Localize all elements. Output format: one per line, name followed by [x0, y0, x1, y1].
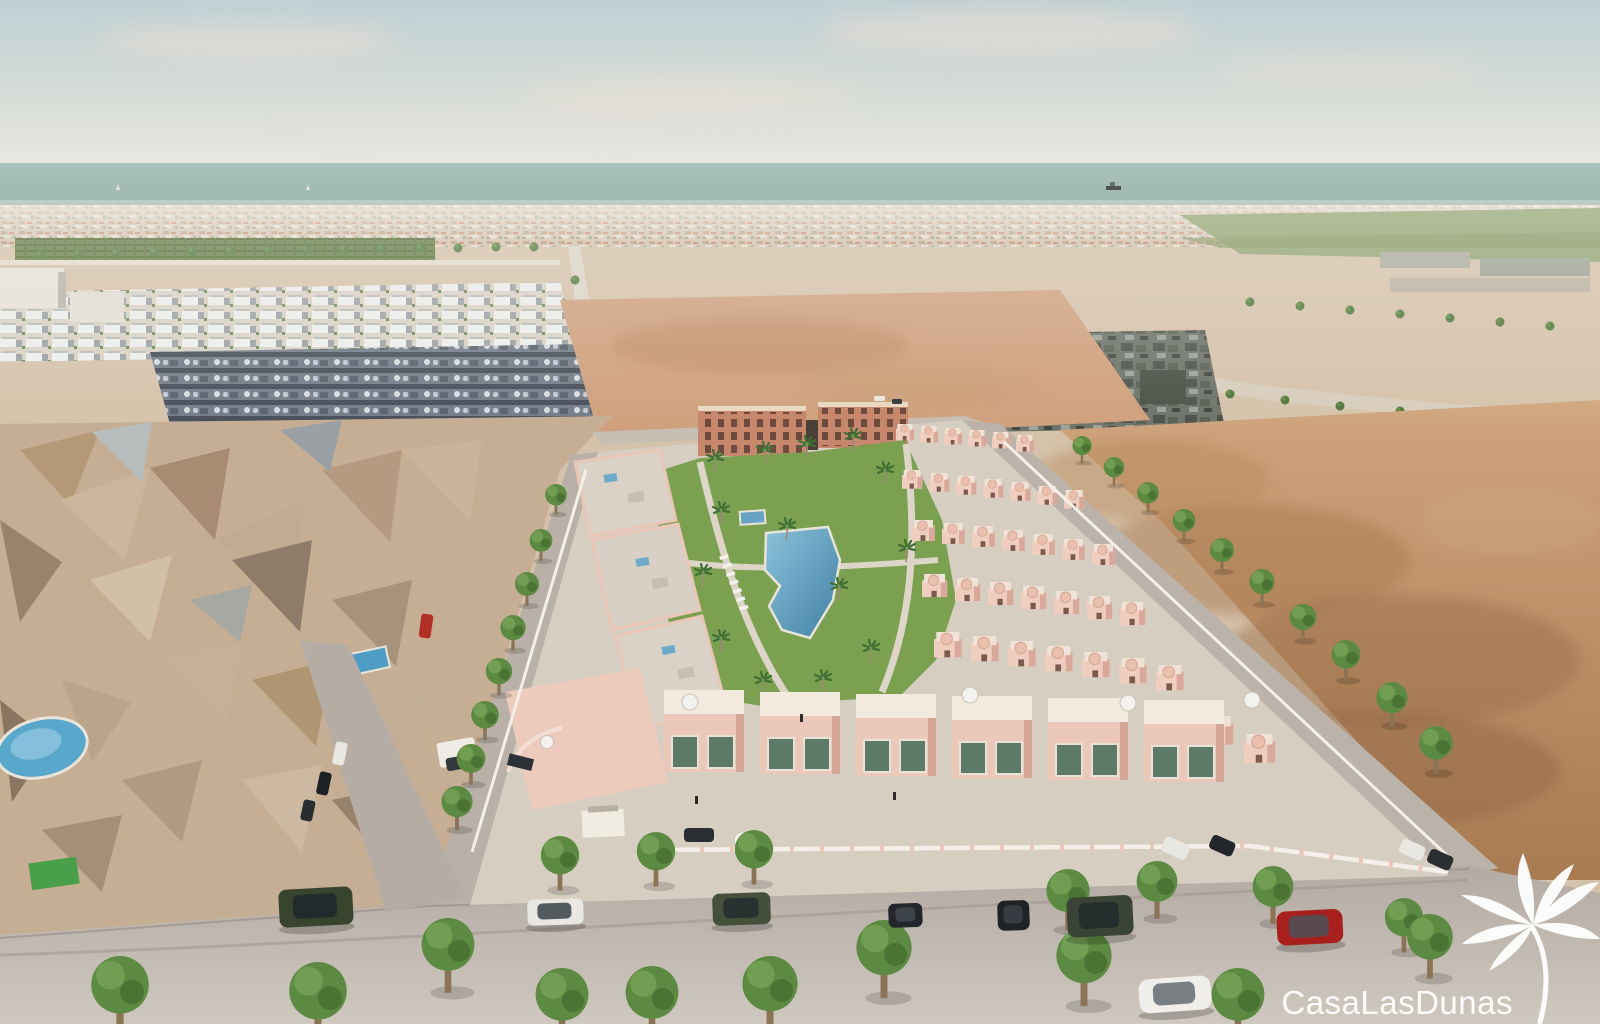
black-suv	[997, 900, 1030, 931]
white-suv	[525, 898, 586, 933]
green-suv	[277, 886, 355, 936]
watermark-text: CasaLasDunas	[1281, 984, 1513, 1022]
white-sedan	[1136, 975, 1215, 1022]
kids-pool	[740, 510, 766, 525]
red-hatchback	[1274, 908, 1346, 954]
black-car	[888, 903, 923, 928]
atmospheric-haze	[0, 200, 1600, 440]
render-scene	[0, 0, 1600, 1024]
green-suv	[1064, 894, 1136, 946]
green-suv	[710, 892, 773, 933]
aerial-render-image: CasaLasDunas	[0, 0, 1600, 1024]
